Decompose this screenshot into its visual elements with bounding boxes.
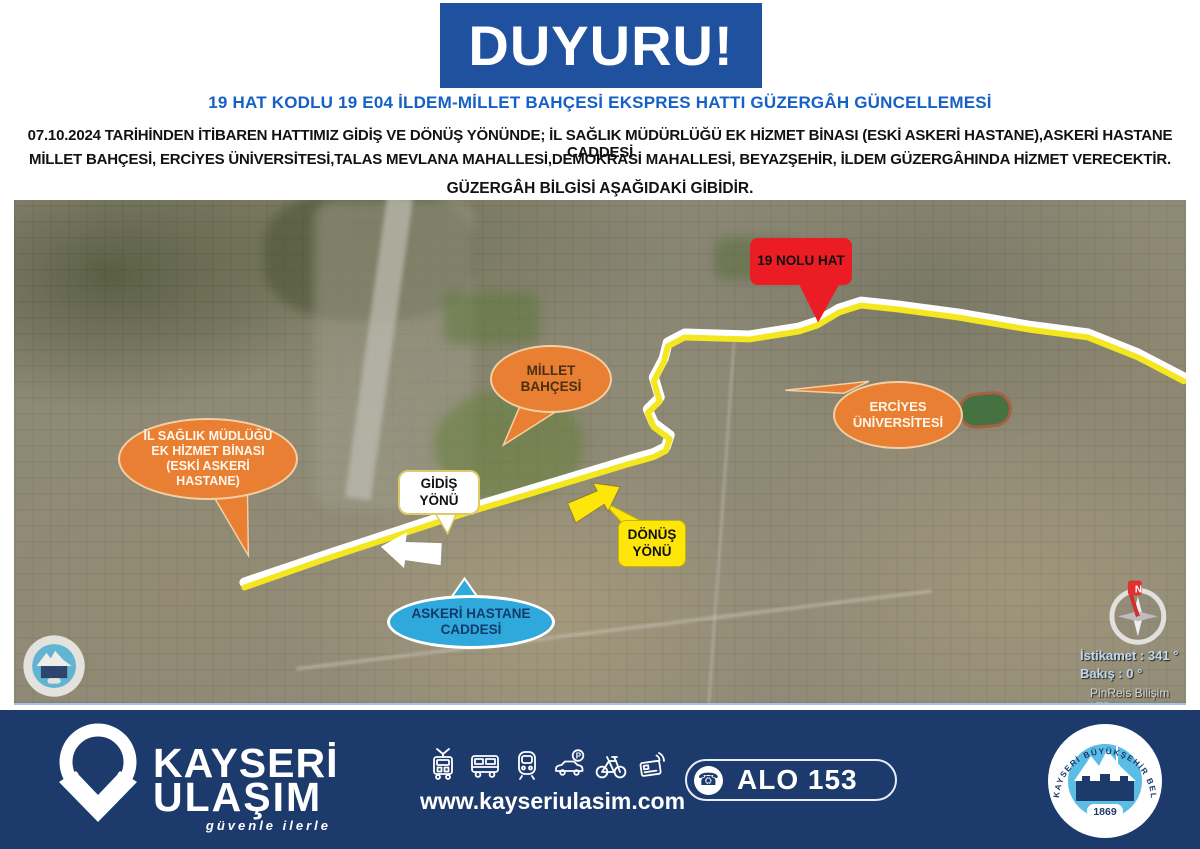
tram-icon [425, 746, 461, 782]
compass-rose: N [1112, 580, 1164, 642]
announcement-poster: DUYURU! 19 HAT KODLU 19 E04 İLDEM-MİLLET… [0, 0, 1200, 849]
saglik-mudurlugu-bubble: İL SAĞLIK MÜDLÜĞÜ EK HİZMET BİNASI (ESKİ… [118, 418, 298, 500]
website-url: www.kayseriulasim.com [415, 788, 690, 815]
body-text-line3: GÜZERGÂH BİLGİSİ AŞAĞIDAKİ GİBİDİR. [0, 180, 1200, 198]
brand-tagline: güvenle ilerle [153, 818, 331, 833]
footer: KAYSERİ ULAŞIM güvenle ilerle [0, 710, 1200, 849]
hotline-number: ALO 153 [737, 764, 858, 796]
donus-yonu-callout: DÖNÜŞ YÖNÜ [618, 520, 686, 567]
metro-icon [509, 746, 545, 782]
bus-icon [467, 746, 503, 782]
phone-icon: ☎ [694, 766, 723, 795]
route-update-subtitle: 19 HAT KODLU 19 E04 İLDEM-MİLLET BAHÇESİ… [0, 93, 1200, 113]
brand-name-line2: ULAŞIM [153, 774, 322, 821]
banner-title: DUYURU! [440, 3, 762, 88]
body-text-line2: MİLLET BAHÇESİ, ERCİYES ÜNİVERSİTESİ,TAL… [0, 151, 1200, 168]
compass-north-label: N [1135, 584, 1142, 595]
map-heading-readout: İstikamet : 341 ° [1080, 648, 1178, 663]
millet-bahcesi-bubble: MİLLET BAHÇESİ [490, 345, 612, 413]
svg-text:P: P [576, 752, 582, 761]
route-number-badge: 19 NOLU HAT [750, 238, 852, 285]
map-view-readout: Bakış : 0 ° [1080, 666, 1142, 681]
contactless-card-icon [635, 746, 671, 782]
car-parking-icon: P [551, 746, 587, 782]
transport-icons-row: P [425, 746, 671, 782]
seal-year: 1869 [1093, 806, 1117, 818]
map-credit: PinReis Bilişim LTD [1090, 686, 1186, 705]
citadel-graphic [1076, 774, 1134, 801]
gidis-yonu-callout: GİDİŞ YÖNÜ [398, 470, 480, 515]
municipality-seal-watermark [23, 635, 84, 696]
askeri-hastane-caddesi-bubble: ASKERİ HASTANE CADDESİ [387, 595, 555, 649]
kayseri-ulasim-pin-icon [42, 718, 154, 840]
bicycle-icon [593, 746, 629, 782]
satellite-map: N 19 NOLU HAT MİLLET BAHÇESİ ERCİYES ÜNİ… [14, 200, 1186, 705]
municipality-seal: KAYSERİ BÜYÜKŞEHİR BELEDİYESİ 1869 [1046, 718, 1164, 844]
hotline-badge: ☎ ALO 153 [685, 759, 897, 801]
erciyes-universitesi-bubble: ERCİYES ÜNİVERSİTESİ [833, 381, 963, 449]
